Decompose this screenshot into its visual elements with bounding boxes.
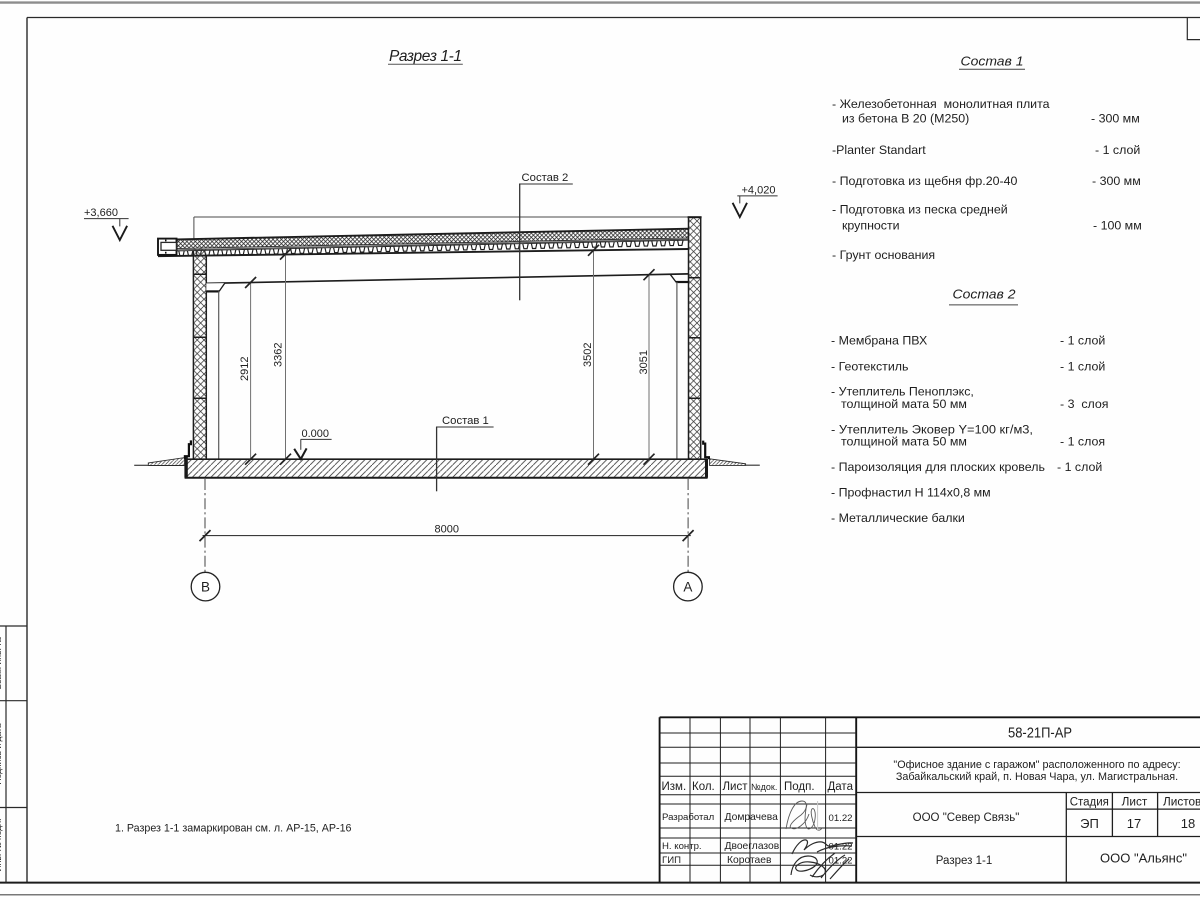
svg-text:Двоеглазов: Двоеглазов — [725, 841, 780, 852]
svg-text:Инв. № подл.: Инв. № подл. — [0, 819, 3, 872]
svg-text:- 1 слой: - 1 слой — [1057, 460, 1102, 474]
svg-text:Состав 1: Состав 1 — [442, 415, 489, 427]
svg-text:Подп.: Подп. — [784, 781, 815, 793]
svg-text:- Пароизоляция для плоских кро: - Пароизоляция для плоских кровель — [831, 460, 1045, 474]
svg-text:Лист: Лист — [723, 781, 749, 793]
svg-text:- 100 мм: - 100 мм — [1093, 219, 1142, 233]
svg-text:- 300 мм: - 300 мм — [1092, 174, 1141, 188]
svg-text:18: 18 — [1181, 816, 1195, 831]
svg-text:17: 17 — [1127, 816, 1141, 831]
svg-text:- Металлические балки: - Металлические балки — [831, 511, 965, 525]
svg-text:- Подготовка из песка средней: - Подготовка из песка средней — [832, 203, 1008, 217]
svg-text:1. Разрез 1-1 замаркирован см.: 1. Разрез 1-1 замаркирован см. л. АР-15,… — [115, 823, 352, 835]
svg-text:- 1 слоя: - 1 слоя — [1060, 435, 1105, 449]
svg-text:3051: 3051 — [638, 350, 650, 374]
svg-text:- Геотекстиль: - Геотекстиль — [831, 359, 908, 373]
svg-text:"Офисное здание с гаражом" рас: "Офисное здание с гаражом" расположенног… — [893, 759, 1180, 771]
svg-text:8000: 8000 — [435, 523, 459, 535]
svg-text:Коротаев: Коротаев — [727, 855, 772, 866]
svg-text:ООО "Альянс": ООО "Альянс" — [1100, 851, 1187, 866]
svg-text:Н. контр.: Н. контр. — [662, 841, 702, 852]
svg-text:3362: 3362 — [273, 343, 285, 367]
svg-text:Взам. инв. №: Взам. инв. № — [0, 637, 3, 690]
svg-text:ООО "Север Связь": ООО "Север Связь" — [913, 812, 1020, 824]
svg-text:из бетона В 20 (М250): из бетона В 20 (М250) — [842, 112, 969, 126]
svg-text:Домрачева: Домрачева — [725, 812, 779, 823]
svg-text:Состав 2: Состав 2 — [953, 287, 1017, 302]
svg-text:- Железобетонная монолитная п: - Железобетонная монолитная плита — [832, 97, 1050, 111]
svg-text:Лист: Лист — [1122, 795, 1148, 809]
svg-text:Изм.: Изм. — [662, 781, 687, 793]
svg-text:А: А — [683, 579, 692, 594]
svg-text:ГИП: ГИП — [662, 855, 681, 866]
svg-text:Разработал: Разработал — [662, 812, 714, 823]
svg-text:Листов: Листов — [1163, 795, 1200, 809]
svg-text:3502: 3502 — [582, 343, 594, 367]
svg-text:ЭП: ЭП — [1080, 816, 1099, 831]
svg-text:- 1 слой: - 1 слой — [1095, 143, 1140, 157]
svg-text:+4,020: +4,020 — [742, 184, 776, 196]
svg-text:- Грунт основания: - Грунт основания — [832, 248, 935, 262]
svg-text:Разрез 1-1: Разрез 1-1 — [389, 48, 462, 65]
svg-text:№док.: №док. — [751, 782, 777, 792]
svg-text:2912: 2912 — [239, 357, 251, 381]
svg-text:58-21П-АР: 58-21П-АР — [1008, 725, 1072, 742]
svg-text:- Подготовка из щебня фр.20-40: - Подготовка из щебня фр.20-40 — [832, 174, 1017, 188]
svg-text:- Мембрана ПВХ: - Мембрана ПВХ — [831, 334, 927, 348]
svg-text:Состав 2: Состав 2 — [522, 172, 569, 184]
svg-text:Забайкальский край, п. Новая Ч: Забайкальский край, п. Новая Чара, ул. М… — [896, 771, 1178, 783]
svg-text:+3,660: +3,660 — [84, 207, 118, 219]
svg-text:Кол.: Кол. — [692, 781, 715, 793]
svg-text:толщиной мата 50 мм: толщиной мата 50 мм — [841, 397, 967, 411]
svg-text:В: В — [201, 579, 210, 594]
svg-text:0.000: 0.000 — [302, 428, 330, 440]
svg-text:толщиной мата 50 мм: толщиной мата 50 мм — [841, 435, 967, 449]
svg-text:крупности: крупности — [842, 219, 900, 233]
svg-text:Состав 1: Состав 1 — [961, 54, 1024, 69]
svg-text:- 300 мм: - 300 мм — [1091, 112, 1140, 126]
svg-text:01.22: 01.22 — [829, 813, 853, 824]
svg-text:-Planter Standart: -Planter Standart — [832, 143, 926, 157]
svg-text:Разрез 1-1: Разрез 1-1 — [936, 855, 992, 867]
svg-text:Подпись и дата: Подпись и дата — [0, 723, 3, 784]
svg-text:Стадия: Стадия — [1070, 797, 1109, 809]
svg-text:- 3 слоя: - 3 слоя — [1060, 397, 1109, 411]
svg-text:- 1 слой: - 1 слой — [1060, 359, 1105, 373]
svg-text:- 1 слой: - 1 слой — [1060, 334, 1105, 348]
svg-text:Дата: Дата — [828, 781, 854, 793]
svg-text:- Профнастил Н 114х0,8 мм: - Профнастил Н 114х0,8 мм — [831, 486, 991, 500]
